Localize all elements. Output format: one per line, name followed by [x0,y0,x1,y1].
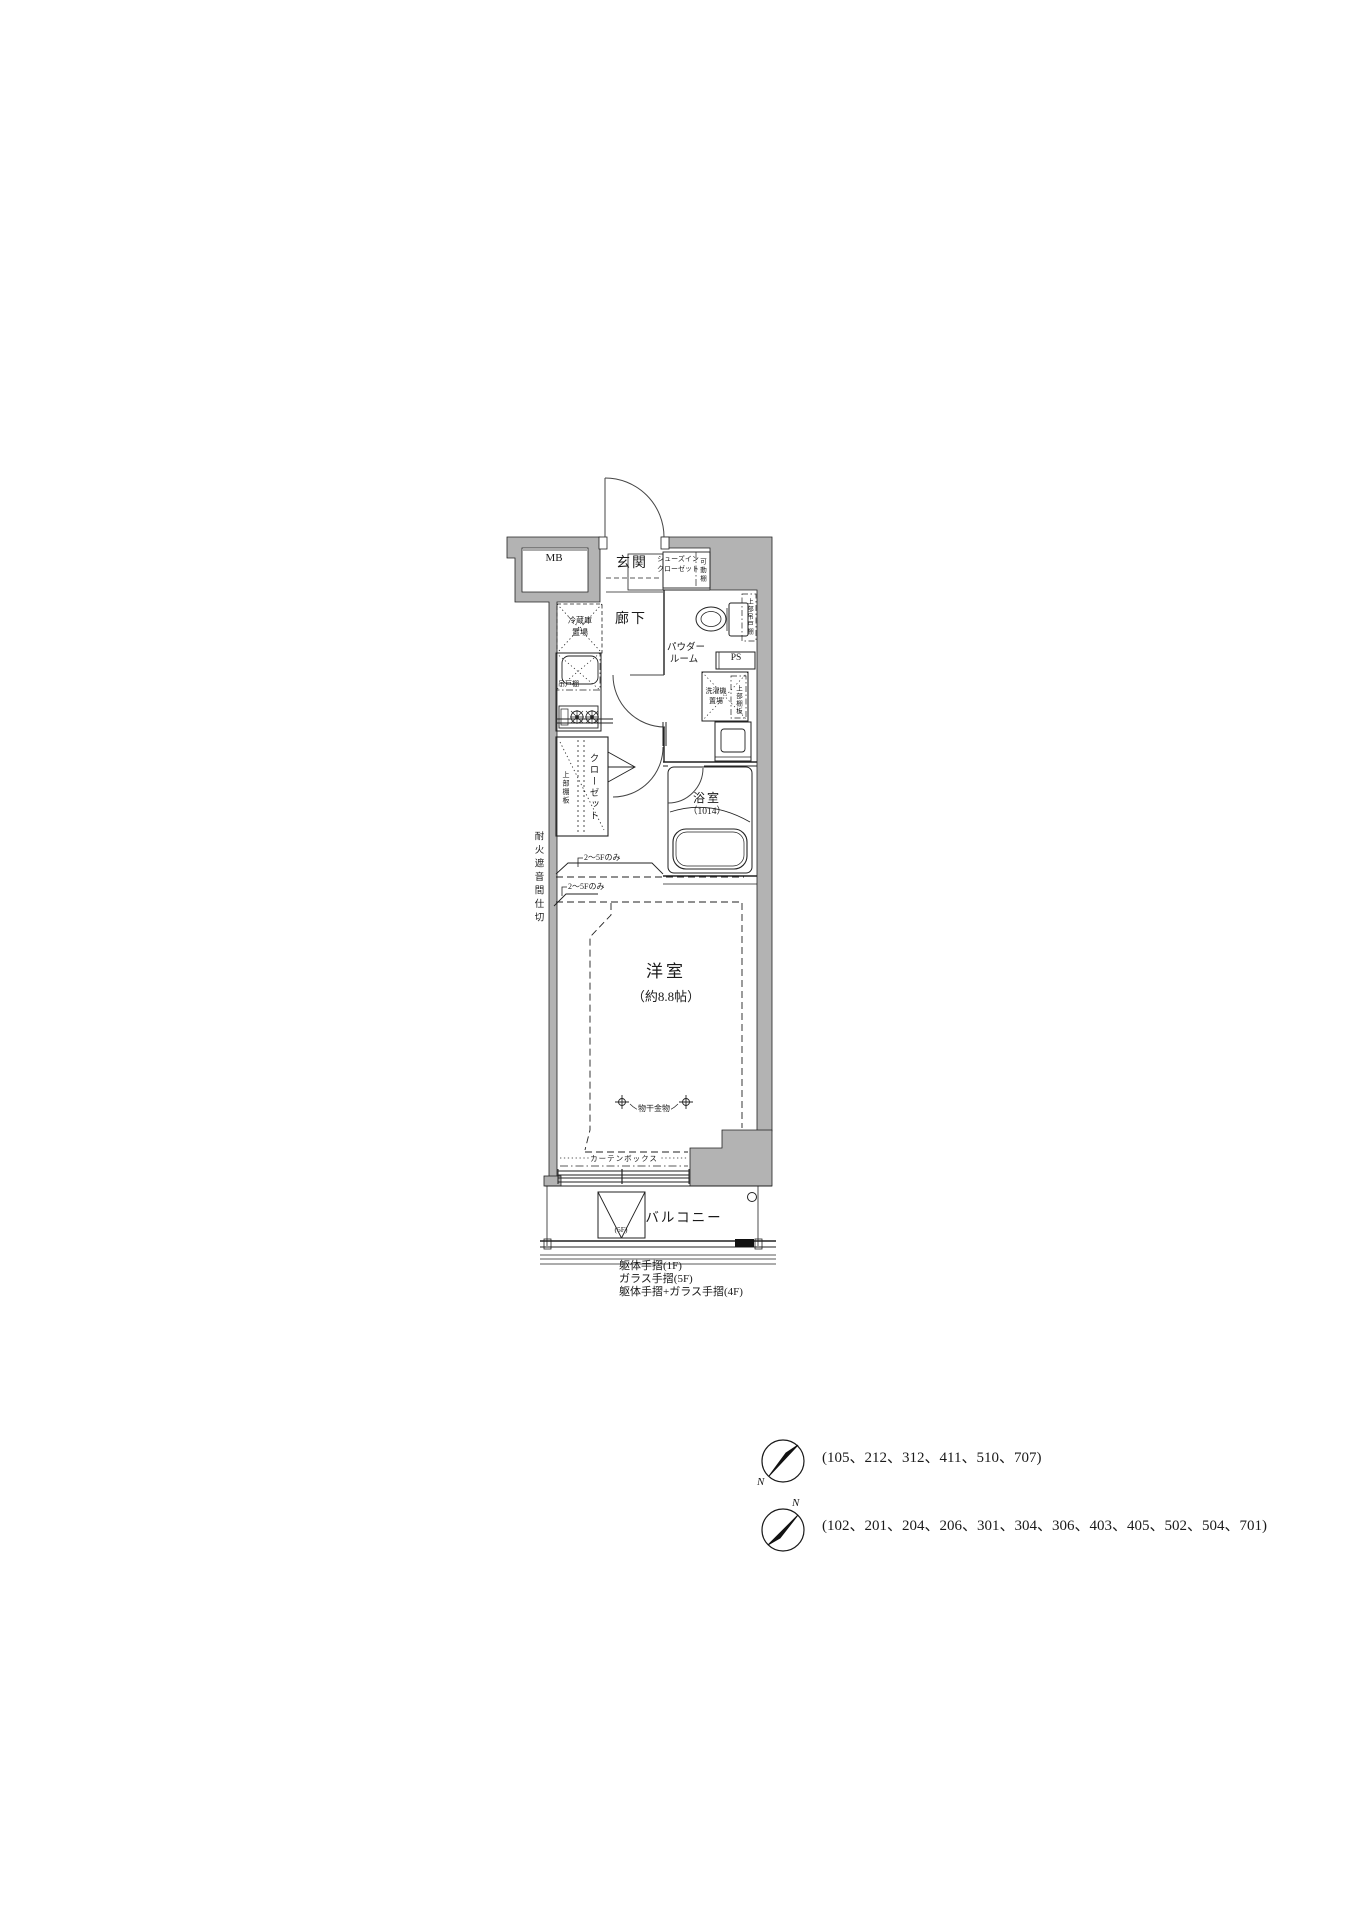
label-fridge-2: 置場 [572,629,588,637]
label-powder-1: パウダー [667,644,705,654]
label-entrance: 玄関 [616,557,648,571]
label-hallway: 廊下 [615,613,647,627]
stove-icon [559,706,599,728]
label-washer-2: 置場 [709,698,723,705]
label-floors-only-1: 2〜5Fのみ [584,854,620,862]
window-sliding [558,1169,689,1184]
room-door-icon [613,747,663,797]
wall-bottom-right-block [690,1130,772,1186]
wall-top-right [662,537,772,1131]
footnote-1: 躯体手摺(1F) [619,1261,682,1272]
floorplan-page: MB 玄関 シューズイン クローゼット 可動棚 廊下 パウダー ルーム PS 洗… [0,0,1358,1920]
drain-icon [748,1193,757,1202]
label-floors-only-2: 2〜5Fのみ [568,883,604,891]
powder-door-icon [613,675,665,727]
label-bath: 浴室 [693,792,721,804]
label-western-room: 洋室 [646,963,686,980]
washbasin-icon [715,722,751,761]
entrance-door-icon [605,478,664,537]
label-washer-1: 洗濯機 [706,688,727,695]
label-ps: PS [731,654,742,664]
compass-2-icon [762,1509,804,1551]
label-mb: MB [545,553,562,564]
compass-1-icon [762,1440,804,1482]
railing-post-block [735,1239,754,1247]
label-western-room-size: （約8.8帖） [632,990,700,1003]
compass-2-units: (102、201、204、206、301、304、306、403、405、502… [822,1519,1267,1534]
label-shoes-closet-2: クローゼット [657,566,699,573]
bifold-door-icon [608,752,635,782]
label-firewall-partition: 耐火遮音間仕切 [532,831,542,926]
label-balcony-5f: (5F) [615,1226,628,1234]
label-upper-shelf-powder: 上部棚板 [734,685,741,715]
label-shoes-closet-1: シューズイン [657,556,699,563]
label-closet: クローゼット [587,753,597,822]
floorplan-drawing [0,0,1358,1920]
label-hanging-cupboard: 吊戸棚 [558,681,579,688]
powder-room-walls [663,590,710,762]
door-jambs [599,537,669,549]
compass-2-north-label: N [792,1498,799,1509]
toilet-icon [696,603,748,636]
label-upper-shelf-closet: 上部棚板 [562,771,569,805]
room-entry-walls [557,719,666,746]
label-upper-hanging-cabinet: 上部吊戸棚 [745,598,752,636]
footnote-2: ガラス手摺(5F) [619,1274,693,1285]
label-balcony: バルコニー [645,1211,722,1225]
label-laundry-hardware: 物干金物 [637,1105,671,1113]
label-movable-shelf: 可動棚 [698,558,705,584]
room-outline-dashed [556,902,742,1152]
label-powder-2: ルーム [670,656,698,666]
footnote-3: 躯体手摺+ガラス手摺(4F) [619,1287,743,1298]
label-curtain-box: カーテンボックス [589,1155,659,1163]
label-bath-size: （1014） [688,808,726,818]
label-fridge-1: 冷蔵庫 [568,617,592,625]
compass-1-north-label: N [757,1477,764,1488]
compass-1-units: (105、212、312、411、510、707) [822,1451,1041,1466]
balcony [540,1186,776,1264]
bathroom [663,762,757,884]
